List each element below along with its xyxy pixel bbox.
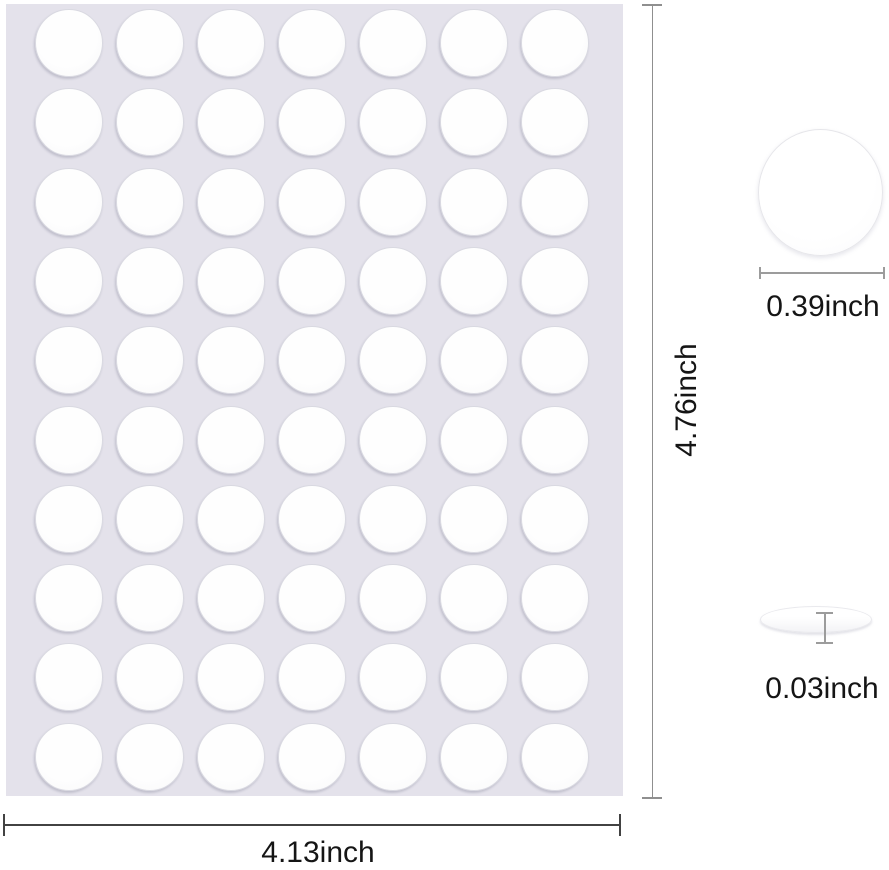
sheet-height-label: 4.76inch [670,315,704,485]
sheet-width-label: 4.13inch [198,836,438,870]
sheet-height-dimension-bottom-tick [642,797,662,799]
adhesive-dot [440,168,508,236]
adhesive-dot [521,406,589,474]
adhesive-dot [116,88,184,156]
adhesive-dot [35,564,103,632]
adhesive-dot [359,326,427,394]
adhesive-dot [440,9,508,77]
adhesive-dot [116,406,184,474]
adhesive-dot [116,168,184,236]
adhesive-dot [116,326,184,394]
dot-thickness-dimension-top-tick [816,612,833,614]
adhesive-dot [359,247,427,315]
adhesive-dot [278,485,346,553]
adhesive-dot [440,643,508,711]
adhesive-dot [197,9,265,77]
adhesive-dot [197,88,265,156]
adhesive-dot [521,564,589,632]
sheet-width-dimension-line [3,824,621,826]
adhesive-dot [359,168,427,236]
adhesive-dot [521,643,589,711]
adhesive-dot [35,485,103,553]
adhesive-dot [116,564,184,632]
adhesive-dot [197,564,265,632]
adhesive-dot [197,643,265,711]
dot-diameter-dimension-right-tick [883,267,885,279]
dot-thickness-dimension-bottom-tick [816,642,833,644]
adhesive-dot [440,564,508,632]
adhesive-dot-sheet [6,4,623,796]
adhesive-dot [116,723,184,791]
adhesive-dot [278,723,346,791]
adhesive-dot [35,247,103,315]
sheet-height-dimension-line [652,4,653,799]
adhesive-dot [359,88,427,156]
adhesive-dot [521,723,589,791]
adhesive-dot [359,406,427,474]
adhesive-dot [35,9,103,77]
adhesive-dot [278,564,346,632]
adhesive-dot [35,326,103,394]
adhesive-dot [359,9,427,77]
adhesive-dot [278,9,346,77]
adhesive-dot [35,643,103,711]
dot-diameter-label: 0.39inch [703,290,889,324]
adhesive-dot [521,168,589,236]
adhesive-dot [359,564,427,632]
adhesive-dot [521,9,589,77]
adhesive-dot [278,326,346,394]
adhesive-dot [197,723,265,791]
adhesive-dot [197,168,265,236]
adhesive-dot [440,723,508,791]
dot-diameter-dimension-line [759,272,885,274]
adhesive-dot [440,326,508,394]
adhesive-dots-dimension-diagram: 4.76inch 4.13inch 0.39inch 0.03inch [0,0,889,870]
adhesive-dot [197,326,265,394]
adhesive-dot [35,723,103,791]
adhesive-dot [197,485,265,553]
sheet-height-dimension-top-tick [642,4,662,6]
adhesive-dot [440,485,508,553]
sheet-width-dimension-right-tick [619,814,621,836]
single-dot-front-view [758,129,883,256]
adhesive-dot [35,88,103,156]
adhesive-dot [278,643,346,711]
adhesive-dot [440,88,508,156]
adhesive-dot [521,247,589,315]
adhesive-dot [35,168,103,236]
adhesive-dot [521,88,589,156]
sheet-width-dimension-left-tick [3,814,5,836]
adhesive-dot [521,485,589,553]
adhesive-dot [116,247,184,315]
dot-thickness-label: 0.03inch [702,672,889,706]
adhesive-dot [116,643,184,711]
single-dot-side-view [760,606,872,633]
adhesive-dot [278,168,346,236]
adhesive-dot [359,485,427,553]
adhesive-dot [116,9,184,77]
adhesive-dot [278,88,346,156]
adhesive-dot [521,326,589,394]
adhesive-dot [359,643,427,711]
dot-thickness-dimension-line [824,612,826,644]
adhesive-dot [359,723,427,791]
adhesive-dot [116,485,184,553]
adhesive-dot [278,406,346,474]
dot-diameter-dimension-left-tick [759,267,761,279]
adhesive-dot [278,247,346,315]
adhesive-dot [197,247,265,315]
adhesive-dot [35,406,103,474]
adhesive-dot [440,406,508,474]
adhesive-dot [197,406,265,474]
adhesive-dot [440,247,508,315]
